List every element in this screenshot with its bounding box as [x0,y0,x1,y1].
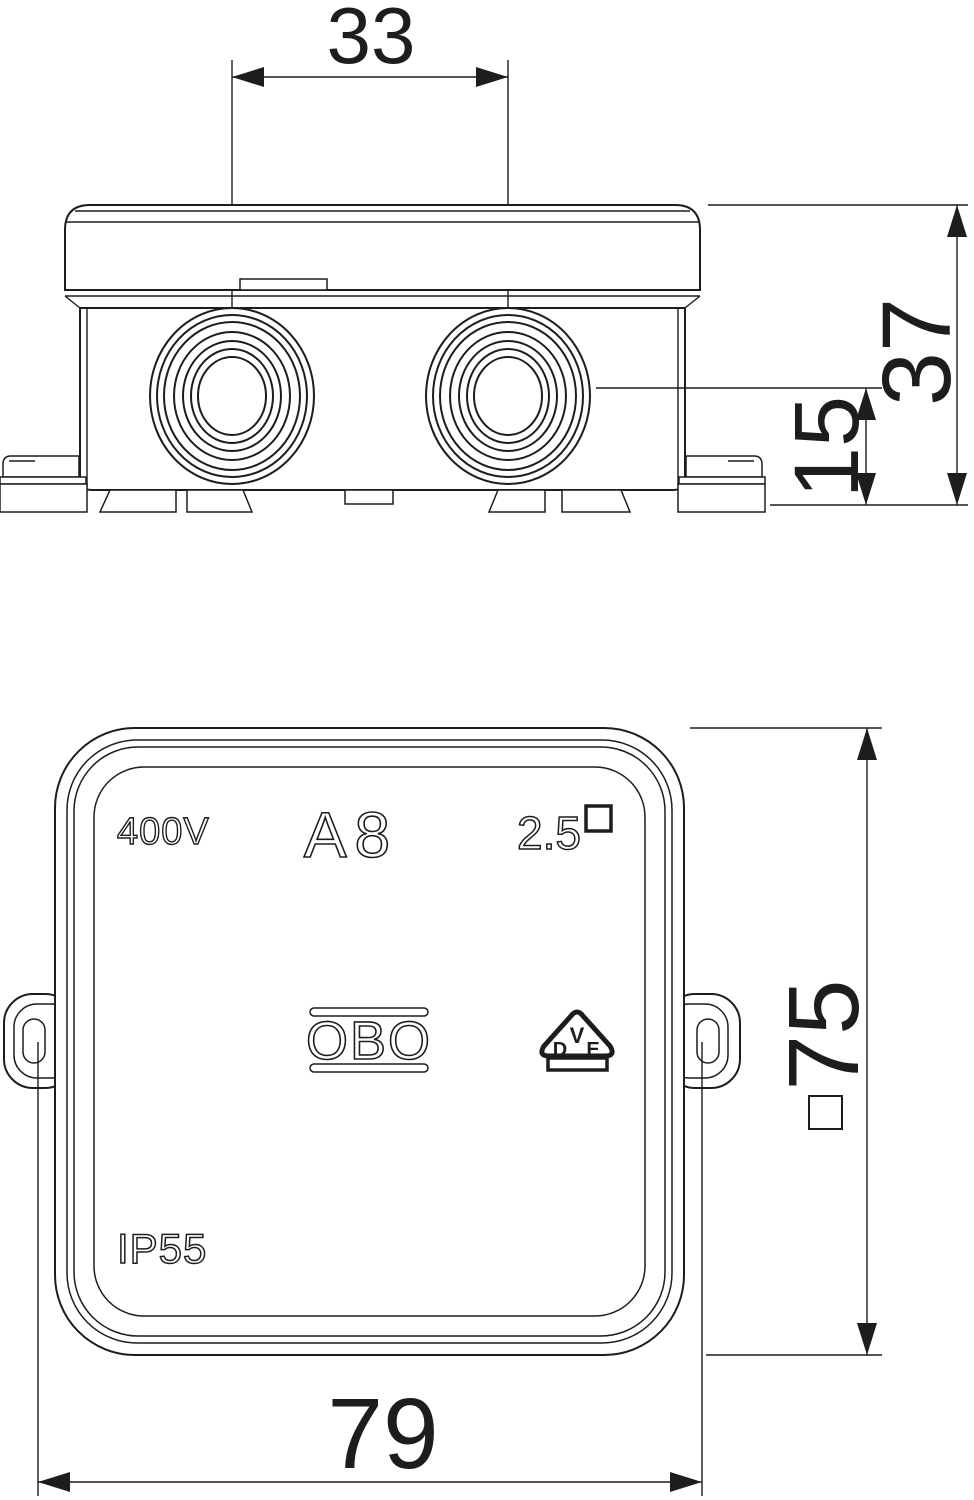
dim-entry-height-value: 15 [776,396,878,498]
cable-entry-right [426,308,590,484]
arrowhead-up [947,205,967,237]
vde-letter-v: V [570,1023,585,1048]
dim-overall-width-value: 79 [327,1378,438,1490]
lid-outline [65,205,700,290]
lid-flange-taper-right [685,296,700,308]
lid-clip-tab [240,279,327,290]
mounting-flange-right [678,456,765,512]
flange-tab [686,456,762,477]
bottom-feet [100,490,630,512]
dim-total-height-value: 37 [862,298,971,406]
junction-box-drawing: 33 [0,0,974,1500]
flange-base [678,484,765,512]
technical-drawing-page: 33 [0,0,974,1500]
ear-hole-left [23,1019,45,1063]
arrowhead-right [476,67,508,87]
arrowhead-down [947,473,967,505]
conductor-marking: 2.5 [517,807,581,859]
lid [65,205,700,308]
foot [562,490,630,512]
foot [187,490,252,512]
arrowhead-down [857,1323,877,1355]
dim-square-size-value: 75 [768,979,880,1090]
vde-base-bar [548,1058,607,1070]
foot [489,490,545,512]
front-view: 400V A8 2.5 OBO V D E IP55 75 [4,728,882,1496]
mounting-flange-left [0,456,87,512]
square-symbol [809,1096,842,1129]
lid-flange-taper-left [65,296,80,308]
square-symbol [586,806,611,831]
flange-band [0,477,86,484]
ip-rating-marking: IP55 [117,1225,207,1272]
flange-base [0,484,87,512]
cable-entry-left [150,308,314,484]
model-marking: A8 [304,799,398,871]
brand-logo-text: OBO [306,1011,432,1071]
foot [100,490,176,512]
arrowhead-left [38,1472,70,1492]
flange-tab [3,456,79,477]
arrowhead-left [232,67,264,87]
side-view: 33 [0,0,971,512]
logo-bar-bottom [310,1064,428,1072]
voltage-marking: 400V [117,811,210,853]
ear-hole-right [697,1019,719,1063]
arrowhead-up [857,728,877,760]
dim-entry-spacing-value: 33 [327,0,416,80]
obo-logo: OBO [306,1008,432,1072]
foot-center-tab [345,490,393,504]
flange-band [679,477,765,484]
arrowhead-right [670,1472,702,1492]
